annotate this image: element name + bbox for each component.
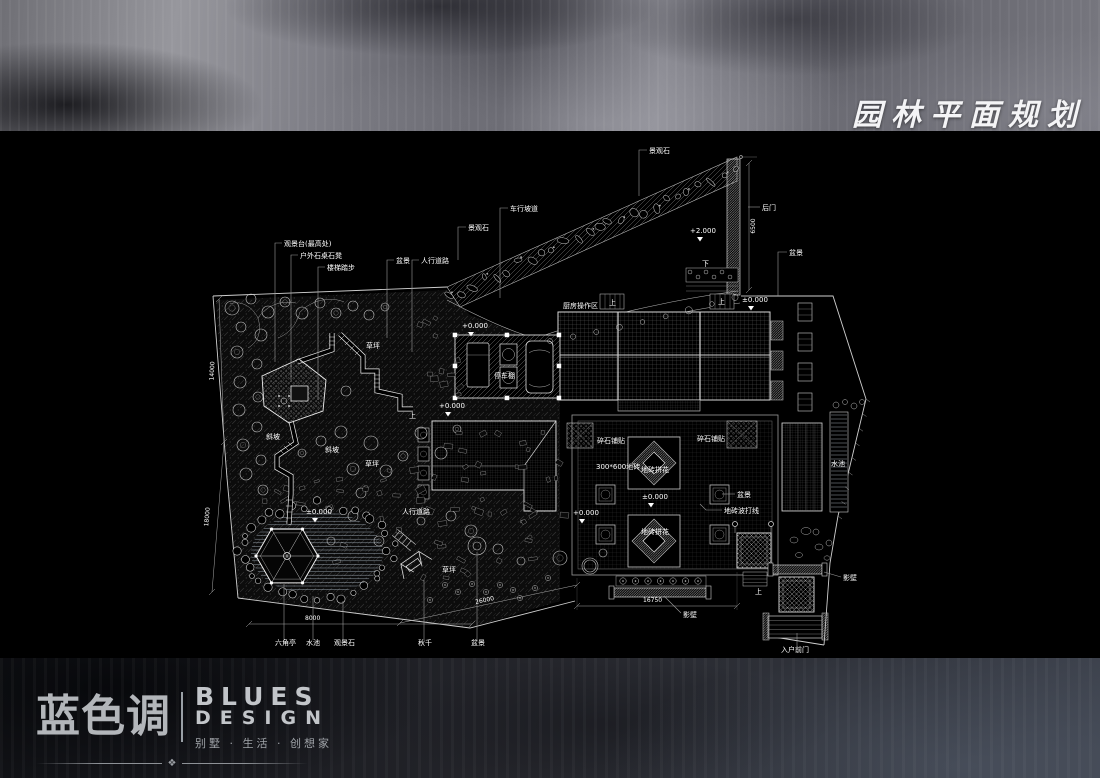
- plan-label: 景观石: [468, 224, 489, 232]
- east-wing: [782, 303, 870, 519]
- leader-line: [778, 252, 787, 296]
- flourish-ornament: ❖: [168, 758, 177, 769]
- plan-label: 8000: [305, 615, 320, 622]
- plan-label: 草坪: [442, 565, 456, 574]
- plan-label: 车行坡道: [510, 204, 538, 213]
- plan-label: 人行道路: [402, 507, 430, 516]
- plan-label: 18000: [203, 507, 212, 527]
- plan-label: 斜坡: [266, 432, 280, 441]
- plan-label: 影壁: [683, 610, 697, 619]
- entry-area: [733, 522, 833, 641]
- plan-label: 人行道路: [421, 256, 449, 265]
- plan-label: 厨房操作区: [563, 301, 598, 310]
- page: 园林平面规划: [0, 0, 1100, 778]
- plan-label: 16750: [643, 597, 662, 604]
- plan-label: 观景台(最高处): [284, 239, 332, 248]
- plan-label: 地砖拼花: [641, 527, 669, 536]
- plan-label: 草坪: [365, 459, 379, 468]
- carport: [453, 333, 562, 401]
- plan-label: +0.000: [573, 509, 599, 517]
- plan-label: 斜坡: [325, 445, 339, 454]
- leader-line: [639, 150, 647, 196]
- plan-label: +0.000: [462, 322, 488, 330]
- plan-label: +2.000: [690, 227, 716, 235]
- plan-label: 地砖拼花: [641, 465, 669, 474]
- plan-label: 六角亭: [275, 638, 296, 647]
- plan-label: 观景石: [334, 639, 355, 647]
- plan-label: 下: [702, 260, 709, 268]
- brand-logo-chinese: 蓝色调: [36, 695, 171, 739]
- plan-label: 盆景: [396, 256, 410, 265]
- plan-label: 上: [409, 411, 416, 420]
- page-title: 园林平面规划: [852, 90, 1086, 134]
- plan-label: 停车棚: [494, 371, 515, 380]
- brand-logo: 蓝色调 BLUES DESIGN 别墅 · 生活 · 创想家 ❖: [36, 684, 332, 769]
- brand-name-line1: BLUES: [195, 684, 332, 709]
- plan-label: 碎石铺贴: [597, 436, 625, 445]
- plan-label: 300*600地砖: [596, 462, 640, 471]
- plan-label: ±0.000: [642, 493, 668, 501]
- plan-label: ±0.000: [742, 296, 768, 304]
- plan-label: ±0.000: [306, 508, 332, 516]
- plan-label: 秋千: [418, 638, 432, 647]
- elevation-marker: [748, 306, 754, 311]
- plan-label: 碎石铺贴: [697, 434, 725, 443]
- elevation-marker: [697, 237, 703, 242]
- plan-label: 地砖波打线: [724, 506, 759, 515]
- logo-divider: [181, 692, 183, 742]
- plan-label: 上: [609, 298, 616, 307]
- brand-name-line2: DESIGN: [195, 709, 332, 729]
- plan-label: 盆景: [471, 638, 485, 647]
- plan-label: 后门: [762, 203, 776, 212]
- plan-label: 14000: [209, 361, 217, 381]
- plan-label: 上: [755, 587, 762, 596]
- main-building: [558, 294, 783, 411]
- plan-label: 户外石桌石凳: [300, 251, 342, 260]
- plan-label: 入户前门: [781, 645, 809, 654]
- plan-label: 上: [718, 297, 725, 306]
- leader-line: [458, 227, 466, 260]
- leader-line: [664, 596, 681, 613]
- plan-label: +0.000: [439, 402, 465, 410]
- plan-label: 6500: [750, 218, 757, 233]
- plan-label: 水池: [831, 459, 845, 468]
- plan-label: 水池: [306, 638, 320, 647]
- plan-label: 草坪: [366, 341, 380, 350]
- brand-tagline: 别墅 · 生活 · 创想家: [195, 735, 332, 751]
- plan-label: 楼梯踏步: [327, 263, 355, 272]
- plan-label: 盆景: [737, 490, 751, 499]
- plan-label: 盆景: [789, 248, 803, 257]
- plan-label: 影壁: [843, 573, 857, 582]
- plan-label: 景观石: [649, 147, 670, 155]
- logo-flourish: ❖: [36, 758, 308, 769]
